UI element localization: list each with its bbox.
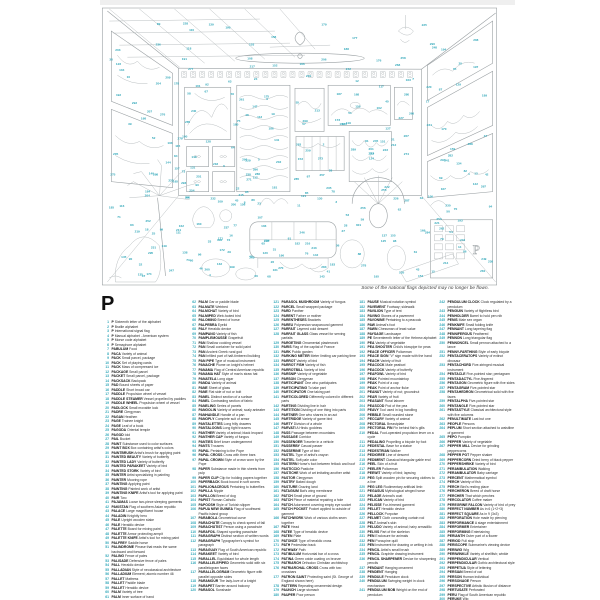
svg-text:252: 252: [146, 219, 151, 223]
entry-text: PEDAL Foot-operated propulsion lever on …: [368, 431, 438, 440]
svg-text:215: 215: [238, 193, 243, 197]
svg-text:282: 282: [448, 154, 453, 158]
list-entry: 117PARALLELOGRAM Geometric figure with p…: [187, 570, 270, 579]
word-list-column-4: 181PAUSE Musical notation symbol182PAVEM…: [356, 300, 437, 597]
svg-text:72: 72: [227, 238, 231, 242]
svg-text:300: 300: [217, 238, 222, 242]
svg-text:137: 137: [382, 234, 387, 238]
svg-text:145: 145: [121, 255, 126, 259]
svg-text:103: 103: [249, 43, 254, 47]
svg-text:125: 125: [381, 239, 386, 243]
list-entry: 166PATCHWORK Work of various cloths sewn…: [270, 516, 356, 525]
svg-text:279: 279: [177, 137, 182, 141]
svg-text:256: 256: [360, 206, 365, 210]
svg-text:27: 27: [342, 229, 346, 233]
svg-text:211: 211: [176, 228, 181, 232]
svg-text:68: 68: [267, 274, 271, 278]
svg-text:219: 219: [135, 230, 140, 234]
svg-text:230: 230: [445, 203, 450, 207]
svg-text:286: 286: [255, 172, 260, 176]
svg-text:116: 116: [119, 204, 124, 208]
svg-text:181: 181: [272, 186, 277, 190]
svg-text:3: 3: [335, 200, 337, 204]
svg-text:154: 154: [418, 274, 423, 278]
svg-text:188: 188: [344, 47, 349, 51]
svg-text:113: 113: [257, 115, 262, 119]
svg-text:129: 129: [456, 83, 461, 87]
svg-text:33: 33: [208, 239, 212, 243]
svg-text:239: 239: [488, 259, 493, 263]
svg-text:244: 244: [460, 238, 465, 242]
entry-text: PENTACHORD Five-stringed musical instrum…: [448, 363, 517, 372]
list-entry: 176PATRIARCHAL CROSS Cross with two cros…: [270, 566, 356, 575]
entry-number: 128: [270, 332, 279, 337]
svg-text:289: 289: [351, 148, 356, 152]
svg-text:95: 95: [245, 190, 249, 194]
svg-text:53: 53: [346, 213, 350, 217]
entry-number: 253: [436, 363, 445, 368]
svg-text:141: 141: [274, 138, 279, 142]
svg-text:278: 278: [361, 263, 366, 267]
svg-text:221: 221: [434, 221, 439, 225]
word-list-column-2: 62PALM Oar or paddle blade63PALMATE Webb…: [187, 300, 270, 593]
svg-text:260: 260: [205, 267, 210, 271]
list-entry: 219PEG Split wooden pin for securing clo…: [356, 476, 437, 485]
svg-text:235: 235: [326, 186, 331, 190]
list-entry: 264PEPLUM Short section attached to wais…: [436, 426, 516, 435]
svg-text:5: 5: [258, 158, 260, 162]
svg-text:42: 42: [485, 172, 489, 176]
svg-text:298: 298: [153, 173, 158, 177]
svg-text:250: 250: [185, 195, 190, 199]
svg-text:12: 12: [355, 79, 359, 83]
list-entry: 128PARFAIT GLASS Glass vessel for servin…: [270, 332, 356, 341]
svg-text:263: 263: [296, 142, 301, 146]
svg-text:176: 176: [376, 59, 381, 63]
entry-text: PALM Inner surface of hand: [112, 595, 188, 600]
entry-number: 242: [436, 300, 445, 305]
svg-text:92: 92: [205, 82, 209, 86]
book-page: { "page": { "letter": "P", "caption": "S…: [0, 0, 600, 600]
svg-text:257: 257: [319, 173, 324, 177]
entry-number: 120: [187, 588, 196, 593]
svg-text:183: 183: [330, 262, 335, 266]
svg-text:66: 66: [254, 274, 258, 278]
svg-text:208: 208: [473, 38, 478, 42]
svg-text:186: 186: [268, 126, 273, 130]
entry-number: 97: [187, 458, 196, 463]
svg-text:2: 2: [323, 143, 325, 147]
entry-number: 219: [356, 476, 365, 481]
svg-text:105: 105: [399, 271, 404, 275]
svg-text:243: 243: [311, 246, 316, 250]
svg-text:26: 26: [271, 260, 275, 264]
entry-text: PEPPER MILL Device for grinding pepperco…: [448, 444, 517, 453]
svg-text:177: 177: [352, 36, 357, 40]
entry-text: PENNONCEL Small pennon attached to a lan…: [448, 341, 517, 350]
list-entry: 120PARASOL Sunshade: [187, 588, 270, 593]
entry-text: PENTACERATOPS Variety of extinct dinosau…: [448, 354, 517, 363]
entry-number: 177: [270, 575, 279, 580]
svg-text:174: 174: [146, 272, 151, 276]
svg-text:96: 96: [198, 253, 202, 257]
svg-text:180: 180: [233, 122, 238, 126]
svg-text:261: 261: [239, 98, 244, 102]
entry-number: 117: [187, 570, 196, 575]
svg-text:64: 64: [231, 145, 235, 149]
svg-text:117: 117: [379, 85, 384, 89]
svg-text:13: 13: [474, 172, 478, 176]
svg-text:226: 226: [393, 196, 398, 200]
svg-text:275: 275: [110, 173, 115, 177]
entry-number: 264: [436, 426, 445, 431]
entry-text: PALINDROME Phrase that reads the same ba…: [112, 545, 188, 554]
svg-text:205: 205: [113, 152, 118, 156]
word-list-column-1: 1P Sixteenth letter of the alphabet2P Br…: [100, 320, 187, 599]
list-entry: 242PENDULUM CLOCK Clock regulated by a p…: [436, 300, 516, 309]
svg-text:297: 297: [481, 185, 486, 189]
svg-text:47: 47: [484, 134, 488, 138]
entry-text: PENDULUM BOB Weight on the end of pendul…: [368, 588, 438, 597]
svg-text:35: 35: [453, 67, 457, 71]
svg-text:175: 175: [264, 94, 269, 98]
list-entry: 252PENTACERATOPS Variety of extinct dino…: [436, 354, 516, 363]
svg-text:36: 36: [336, 244, 340, 248]
svg-text:112: 112: [253, 176, 258, 180]
svg-text:193: 193: [458, 218, 463, 222]
entry-text: PARFAIT GLASS Glass vessel for serving p…: [282, 332, 357, 341]
list-entry: 241PENDULUM BOB Weight on the end of pen…: [356, 588, 437, 597]
svg-text:69: 69: [439, 176, 443, 180]
svg-text:136: 136: [261, 224, 266, 228]
svg-text:34: 34: [420, 196, 424, 200]
svg-text:196: 196: [279, 254, 284, 258]
entry-number: 112: [187, 539, 196, 544]
svg-text:134: 134: [456, 161, 461, 165]
svg-text:189: 189: [482, 94, 487, 98]
svg-text:48: 48: [245, 113, 249, 117]
svg-text:233: 233: [168, 179, 173, 183]
svg-text:127: 127: [385, 126, 390, 130]
list-entry: 98PAPER Substance made in thin sheets fr…: [187, 467, 270, 476]
svg-text:232: 232: [210, 197, 215, 201]
svg-text:273: 273: [318, 156, 323, 160]
entry-number: 210: [356, 431, 365, 436]
svg-text:22: 22: [236, 187, 240, 191]
left-wall-frames: [111, 31, 172, 188]
svg-text:24: 24: [254, 77, 258, 81]
svg-text:104: 104: [119, 68, 124, 72]
svg-text:291: 291: [242, 158, 247, 162]
svg-text:79: 79: [440, 237, 444, 241]
svg-text:118: 118: [186, 46, 191, 50]
list-entry: 106PAPUA NEW GUINEA Flag of southwest Pa…: [187, 507, 270, 516]
svg-text:122: 122: [473, 182, 478, 186]
svg-text:16: 16: [229, 234, 233, 238]
list-entry: 267PEPPER MILL Device for grinding peppe…: [436, 444, 516, 453]
svg-text:98: 98: [393, 239, 397, 243]
svg-text:204: 204: [156, 81, 161, 85]
svg-text:223: 223: [383, 148, 388, 152]
svg-text:199: 199: [229, 265, 234, 269]
svg-text:277: 277: [188, 67, 193, 71]
svg-text:295: 295: [148, 251, 153, 255]
svg-text:163: 163: [406, 78, 411, 82]
entry-text: PAPER Substance made in thin sheets from…: [199, 467, 271, 476]
svg-text:73: 73: [182, 169, 186, 173]
entry-text: PARALLELOGRAM Geometric figure with para…: [199, 570, 271, 579]
svg-text:54: 54: [449, 230, 453, 234]
list-entry: 141PARTICOLORED Differently colored in d…: [270, 395, 356, 404]
section-letter: P: [101, 294, 114, 314]
frieze: [182, 71, 413, 78]
svg-text:109: 109: [218, 199, 223, 203]
svg-text:231: 231: [151, 246, 156, 250]
svg-text:23: 23: [257, 202, 261, 206]
entry-text: PENDULUM Swinging weight in clock mechan…: [368, 579, 438, 588]
word-list-column-5: 242PENDULUM CLOCK Clock regulated by a p…: [436, 300, 516, 600]
svg-text:201: 201: [369, 147, 374, 151]
entry-number: 250: [436, 341, 445, 346]
list-entry: 210PEDAL Foot-operated propulsion lever …: [356, 431, 437, 440]
svg-text:234: 234: [427, 123, 432, 127]
entry-text: PARASOL Sunshade: [199, 588, 271, 593]
svg-text:38: 38: [329, 168, 333, 172]
svg-text:194: 194: [441, 48, 446, 52]
svg-text:191: 191: [182, 57, 187, 61]
svg-text:179: 179: [321, 22, 326, 26]
entry-number: 176: [270, 566, 279, 571]
list-entry: 236PENCIL SHARPENER Device for sharpenin…: [356, 557, 437, 566]
entry-number: 165: [270, 507, 279, 512]
svg-text:198: 198: [141, 116, 146, 120]
svg-text:4: 4: [209, 273, 211, 277]
svg-text:17: 17: [426, 99, 430, 103]
svg-text:159: 159: [450, 147, 455, 151]
svg-text:39: 39: [128, 122, 132, 126]
svg-text:52: 52: [152, 136, 156, 140]
entry-number: 180: [270, 593, 279, 598]
entry-text: PENTASTYLE Classical architectural style…: [448, 408, 517, 417]
svg-text:253: 253: [436, 217, 441, 221]
svg-text:51: 51: [348, 111, 352, 115]
callout-numbers: 1234567891011121314151617181920212223242…: [109, 22, 493, 279]
svg-text:71: 71: [117, 215, 121, 219]
svg-text:156: 156: [240, 202, 245, 206]
svg-text:259: 259: [305, 148, 310, 152]
svg-text:83: 83: [130, 223, 134, 227]
illustration-caption: Some of the national flags depicted may …: [361, 285, 489, 290]
list-entry: 165PATCH POCKET Pocket applied to outsid…: [270, 507, 356, 516]
list-entry: 61PALM Inner surface of hand: [100, 595, 187, 600]
svg-text:139: 139: [209, 22, 214, 26]
svg-text:220: 220: [426, 85, 431, 89]
svg-text:80: 80: [251, 198, 255, 202]
svg-text:25: 25: [152, 231, 156, 235]
svg-text:292: 292: [132, 101, 137, 105]
word-list-column-3: 121PARASOL MUSHROOM Variety of fungus122…: [270, 300, 356, 597]
svg-text:84: 84: [174, 154, 178, 158]
svg-text:110: 110: [189, 28, 194, 32]
svg-text:43: 43: [416, 268, 420, 272]
svg-text:284: 284: [425, 231, 430, 235]
svg-text:249: 249: [481, 257, 486, 261]
svg-text:242: 242: [346, 67, 351, 71]
list-entry: 180PAUPER Poor person: [270, 593, 356, 598]
svg-text:6: 6: [223, 164, 225, 168]
svg-text:248: 248: [432, 46, 437, 50]
entry-number: 267: [436, 444, 445, 449]
entry-number: 166: [270, 516, 279, 521]
list-entry: 112PARAGRAPH Typographer's symbol for pa…: [187, 539, 270, 548]
svg-text:192: 192: [116, 93, 121, 97]
svg-text:294: 294: [440, 158, 445, 162]
svg-text:70: 70: [454, 207, 458, 211]
svg-text:206: 206: [321, 58, 326, 62]
svg-text:157: 157: [174, 167, 179, 171]
svg-text:301: 301: [356, 223, 361, 227]
entry-text: PARTICOLORED Differently colored in diff…: [282, 395, 357, 404]
svg-text:87: 87: [439, 88, 443, 92]
entry-number: 241: [356, 588, 365, 593]
entry-text: PEPLUM Short section attached to waistli…: [448, 426, 517, 435]
svg-text:225: 225: [422, 23, 427, 27]
svg-text:251: 251: [196, 175, 201, 179]
entry-text: PENCIL SHARPENER Device for sharpening p…: [368, 557, 438, 566]
svg-text:247: 247: [169, 269, 174, 273]
svg-text:138: 138: [182, 250, 187, 254]
svg-text:101: 101: [195, 84, 200, 88]
svg-text:128: 128: [206, 140, 211, 144]
svg-text:267: 267: [404, 134, 409, 138]
svg-text:143: 143: [319, 275, 324, 279]
svg-text:77: 77: [233, 224, 237, 228]
svg-text:288: 288: [468, 142, 473, 146]
svg-text:293: 293: [181, 181, 186, 185]
svg-text:217: 217: [250, 64, 255, 68]
svg-text:287: 287: [404, 198, 409, 202]
room-perspective: [107, 11, 495, 282]
svg-text:94: 94: [489, 205, 493, 209]
svg-text:262: 262: [439, 227, 444, 231]
svg-text:168: 168: [354, 93, 359, 97]
svg-text:276: 276: [160, 112, 165, 116]
svg-text:218: 218: [213, 162, 218, 166]
svg-text:62: 62: [398, 208, 402, 212]
annotated-line-drawing: P 12345678910111213141516171819202122232…: [99, 5, 503, 288]
svg-text:269: 269: [249, 255, 254, 259]
entry-text: PENTAHEDRON Geometrical solid with five …: [448, 390, 517, 399]
svg-text:258: 258: [401, 56, 406, 60]
list-entry: 250PENNONCEL Small pennon attached to a …: [436, 341, 516, 350]
svg-text:187: 187: [337, 92, 342, 96]
svg-text:167: 167: [441, 187, 446, 191]
entry-number: 61: [100, 595, 109, 600]
svg-text:58: 58: [187, 91, 191, 95]
svg-text:86: 86: [463, 250, 467, 254]
entry-number: 258: [436, 390, 445, 395]
svg-text:100: 100: [182, 134, 187, 138]
entry-number: 252: [436, 354, 445, 359]
svg-text:63: 63: [228, 79, 232, 83]
svg-text:124: 124: [369, 157, 374, 161]
svg-text:14: 14: [458, 245, 462, 249]
entry-number: 240: [356, 579, 365, 584]
svg-text:74: 74: [186, 258, 190, 262]
svg-text:15: 15: [431, 270, 435, 274]
svg-text:210: 210: [306, 74, 311, 78]
svg-text:281: 281: [480, 269, 485, 273]
svg-text:264: 264: [145, 193, 150, 197]
entry-number: 141: [270, 395, 279, 400]
svg-text:197: 197: [473, 65, 478, 69]
svg-text:89: 89: [157, 22, 161, 26]
svg-text:274: 274: [404, 152, 409, 156]
entry-text: PAUPER Poor person: [282, 593, 357, 598]
svg-text:21: 21: [391, 138, 395, 142]
svg-text:32: 32: [139, 263, 143, 267]
list-entry: 240PENDULUM Swinging weight in clock mec…: [356, 579, 437, 588]
svg-text:165: 165: [173, 179, 178, 183]
svg-text:120: 120: [263, 251, 268, 255]
svg-text:245: 245: [373, 139, 378, 143]
svg-text:185: 185: [109, 206, 114, 210]
svg-text:31: 31: [273, 248, 277, 252]
svg-text:213: 213: [315, 108, 320, 112]
svg-text:255: 255: [381, 188, 386, 192]
svg-text:46: 46: [199, 267, 203, 271]
svg-text:246: 246: [299, 231, 304, 235]
svg-text:216: 216: [305, 241, 310, 245]
svg-text:55: 55: [296, 101, 300, 105]
svg-text:153: 153: [298, 157, 303, 161]
svg-text:190: 190: [225, 25, 230, 29]
svg-text:236: 236: [156, 42, 161, 46]
svg-text:67: 67: [205, 89, 209, 93]
svg-text:203: 203: [115, 48, 120, 52]
svg-text:160: 160: [196, 222, 201, 226]
svg-text:144: 144: [166, 160, 171, 164]
hanging-bird: [398, 15, 413, 42]
entry-text: PATRIARCHAL CROSS Cross with two crossba…: [282, 566, 357, 575]
svg-text:28: 28: [344, 223, 348, 227]
svg-text:299: 299: [303, 119, 308, 123]
svg-text:209: 209: [165, 75, 170, 79]
svg-text:147: 147: [252, 104, 257, 108]
svg-text:271: 271: [246, 178, 251, 182]
svg-text:41: 41: [327, 270, 331, 274]
svg-text:76: 76: [305, 252, 309, 256]
svg-text:283: 283: [321, 265, 326, 269]
entry-number: 106: [187, 507, 196, 512]
svg-text:106: 106: [428, 195, 433, 199]
svg-text:164: 164: [339, 122, 344, 126]
svg-text:195: 195: [374, 275, 379, 279]
svg-text:30: 30: [109, 57, 113, 61]
svg-text:102: 102: [377, 106, 382, 110]
svg-text:280: 280: [404, 93, 409, 97]
svg-text:123: 123: [116, 62, 121, 66]
svg-text:224: 224: [264, 238, 269, 242]
svg-text:18: 18: [145, 227, 149, 231]
svg-text:149: 149: [162, 244, 167, 248]
list-entry: 51PALINDROME Phrase that reads the same …: [100, 545, 187, 554]
svg-text:238: 238: [246, 173, 251, 177]
svg-text:93: 93: [195, 183, 199, 187]
svg-text:97: 97: [307, 174, 311, 178]
svg-text:285: 285: [294, 177, 299, 181]
svg-text:268: 268: [395, 63, 400, 67]
